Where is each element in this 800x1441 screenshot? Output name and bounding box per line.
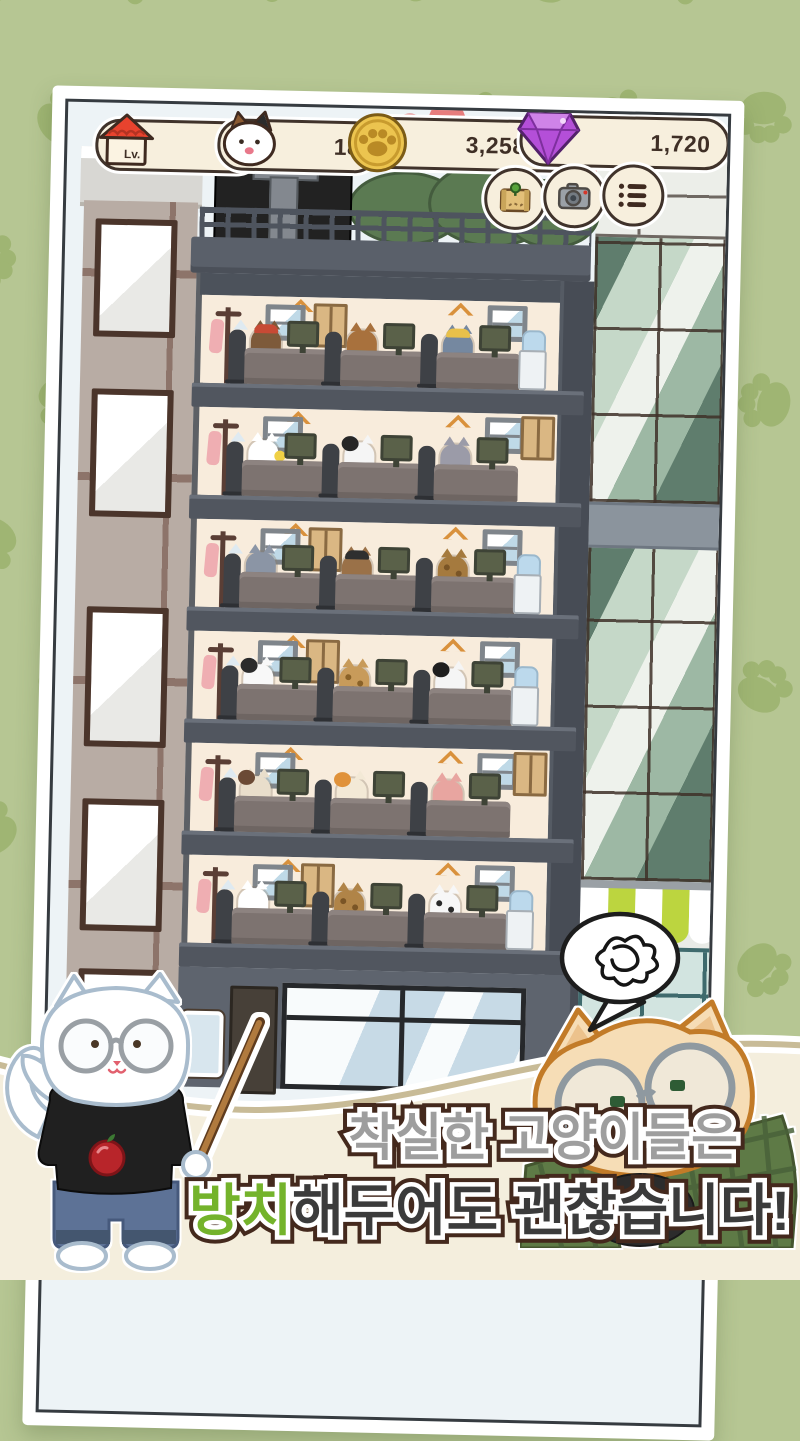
cat-eye xyxy=(133,1040,141,1048)
camera-button[interactable] xyxy=(543,165,606,228)
dark-object xyxy=(586,1174,694,1246)
map-icon xyxy=(497,180,534,217)
cat-icon xyxy=(218,107,281,168)
speech-bubble xyxy=(548,906,698,1043)
cat-foot xyxy=(126,1243,174,1269)
glasses xyxy=(61,1021,111,1071)
list-icon xyxy=(616,178,651,213)
map-button[interactable] xyxy=(484,167,547,230)
game-screen: { "hud": { "level": {"label": "Lv.", "va… xyxy=(0,0,800,1280)
gem-value: 1,720 xyxy=(650,120,711,167)
camera-icon xyxy=(556,179,593,216)
level-label: Lv. xyxy=(111,147,153,162)
paw-coin-icon xyxy=(346,111,409,174)
cat-eye xyxy=(610,1096,625,1107)
cat-eye xyxy=(91,1040,99,1048)
cat-paw xyxy=(183,1152,209,1178)
cat-eye xyxy=(670,1080,685,1091)
cat-foot xyxy=(58,1243,106,1269)
apple-logo xyxy=(90,1141,124,1175)
list-button[interactable] xyxy=(602,164,665,227)
gem-icon xyxy=(512,107,585,171)
gem-badge[interactable]: 1,720 xyxy=(519,114,730,171)
teacher-cat-character xyxy=(0,972,306,1284)
